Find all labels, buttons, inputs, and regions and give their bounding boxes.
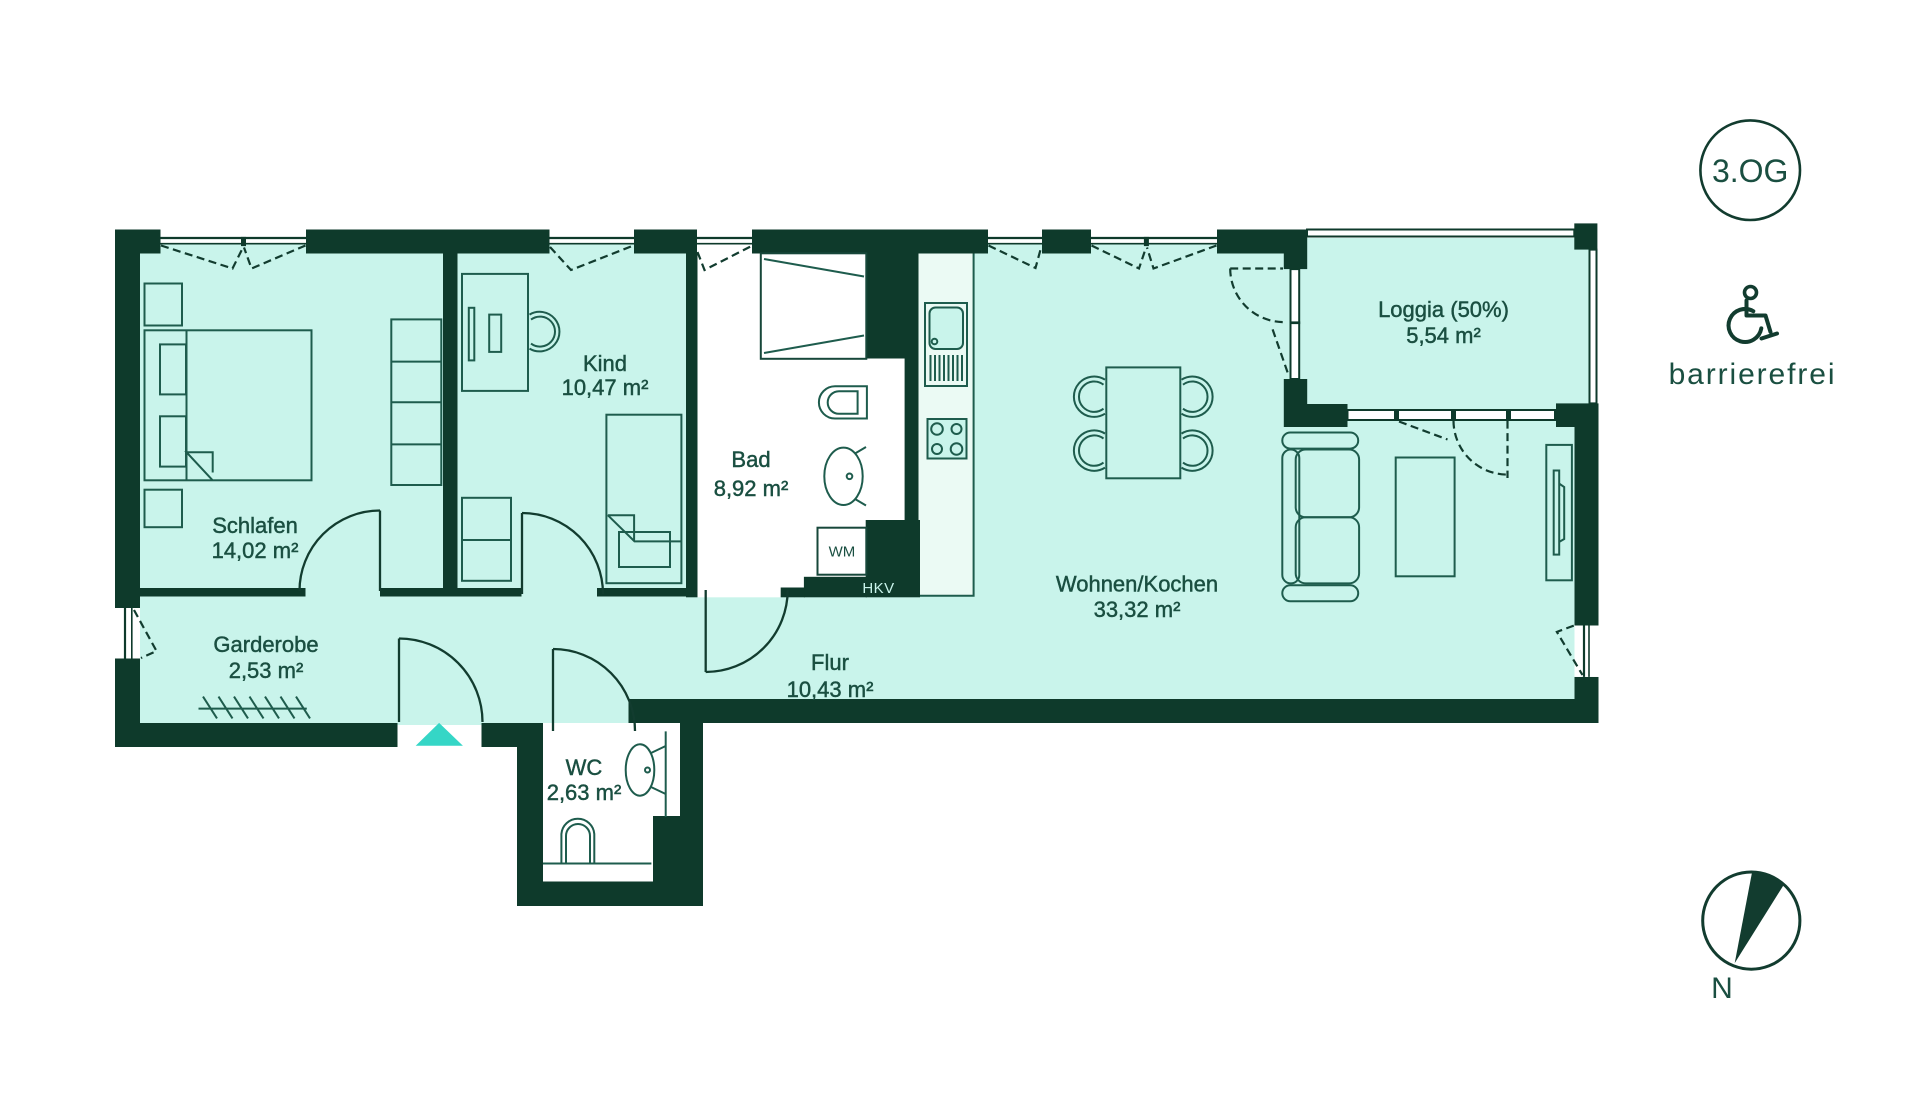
svg-text:barrierefrei: barrierefrei	[1669, 358, 1837, 391]
svg-text:Loggia (50%): Loggia (50%)	[1378, 297, 1509, 322]
svg-text:10,43 m²: 10,43 m²	[787, 677, 874, 702]
svg-text:2,63 m²: 2,63 m²	[547, 780, 622, 805]
svg-text:Wohnen/Kochen: Wohnen/Kochen	[1056, 572, 1218, 597]
svg-text:33,32 m²: 33,32 m²	[1094, 597, 1181, 622]
svg-text:3.OG: 3.OG	[1712, 153, 1788, 189]
svg-text:Garderobe: Garderobe	[213, 632, 318, 657]
svg-text:WC: WC	[566, 755, 603, 780]
svg-text:Schlafen: Schlafen	[212, 513, 298, 538]
svg-text:N: N	[1711, 972, 1733, 1005]
svg-text:WM: WM	[829, 544, 856, 561]
svg-text:Bad: Bad	[731, 447, 770, 472]
svg-text:14,02 m²: 14,02 m²	[212, 538, 299, 563]
svg-text:Flur: Flur	[811, 650, 849, 675]
svg-text:Kind: Kind	[583, 351, 627, 376]
svg-text:8,92 m²: 8,92 m²	[714, 476, 789, 501]
svg-text:10,47 m²: 10,47 m²	[562, 375, 649, 400]
svg-text:5,54 m²: 5,54 m²	[1406, 323, 1481, 348]
svg-text:2,53 m²: 2,53 m²	[229, 658, 304, 683]
svg-text:HKV: HKV	[862, 580, 894, 597]
